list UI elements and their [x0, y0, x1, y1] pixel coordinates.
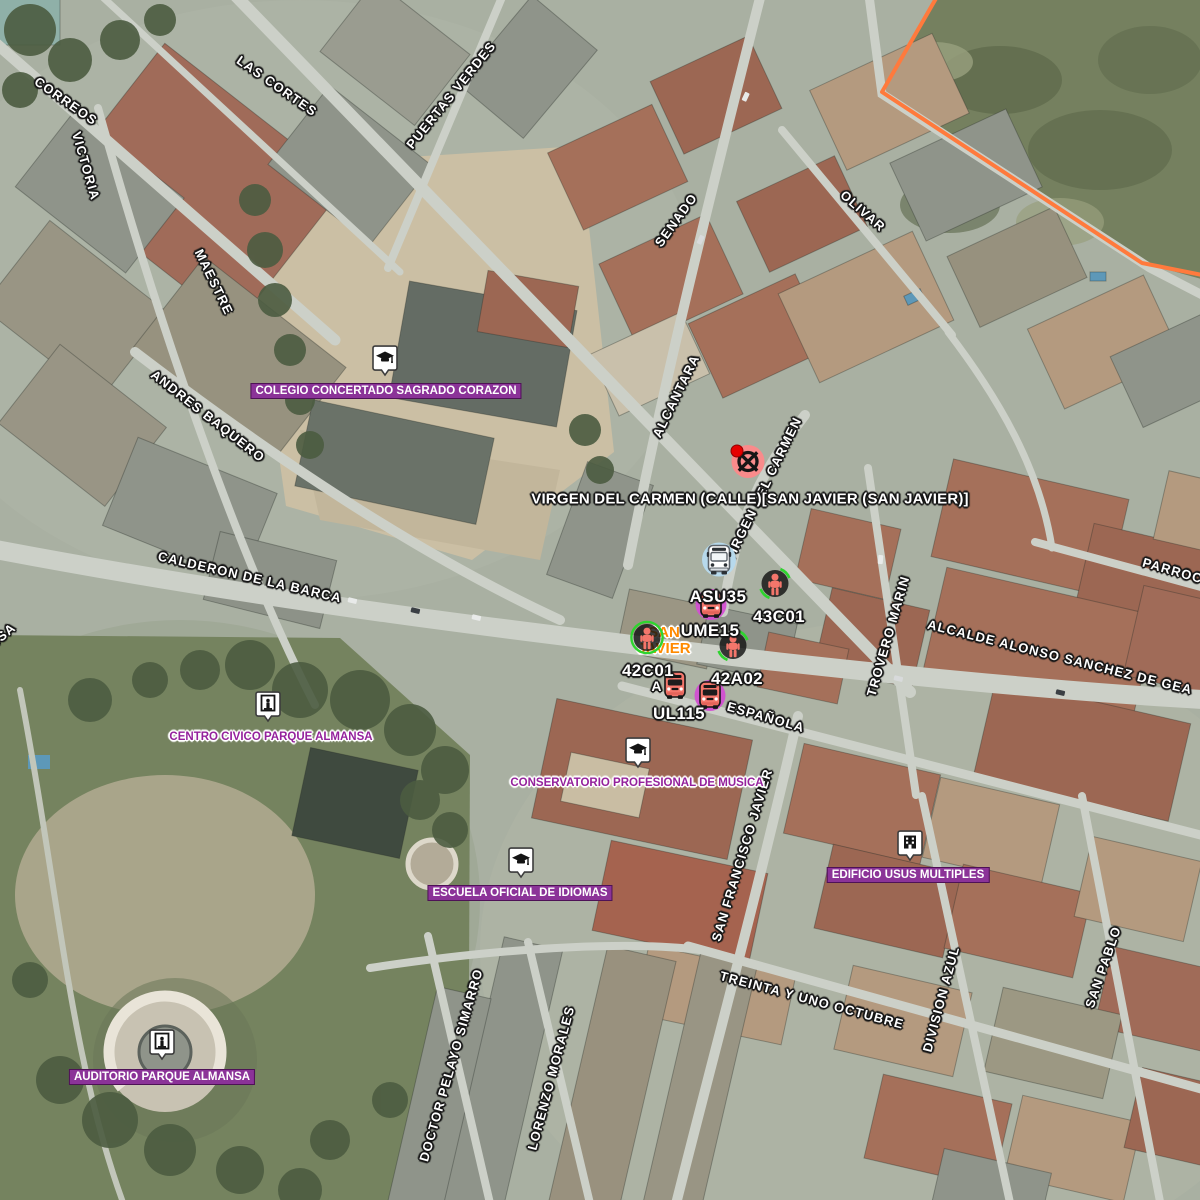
incident-origin-dot	[731, 445, 744, 458]
municipality-line2: JAVIER	[637, 641, 690, 657]
municipality-line1: SAN	[637, 625, 690, 641]
aerial-imagery	[0, 0, 1200, 1200]
satellite-map[interactable]: CORREOSVICTORIALAS CORTESMAESTREPUERTAS …	[0, 0, 1200, 1200]
incident-address-label: VIRGEN DEL CARMEN (CALLE)[SAN JAVIER (SA…	[531, 491, 969, 508]
municipality-label: SAN JAVIER	[637, 625, 690, 657]
